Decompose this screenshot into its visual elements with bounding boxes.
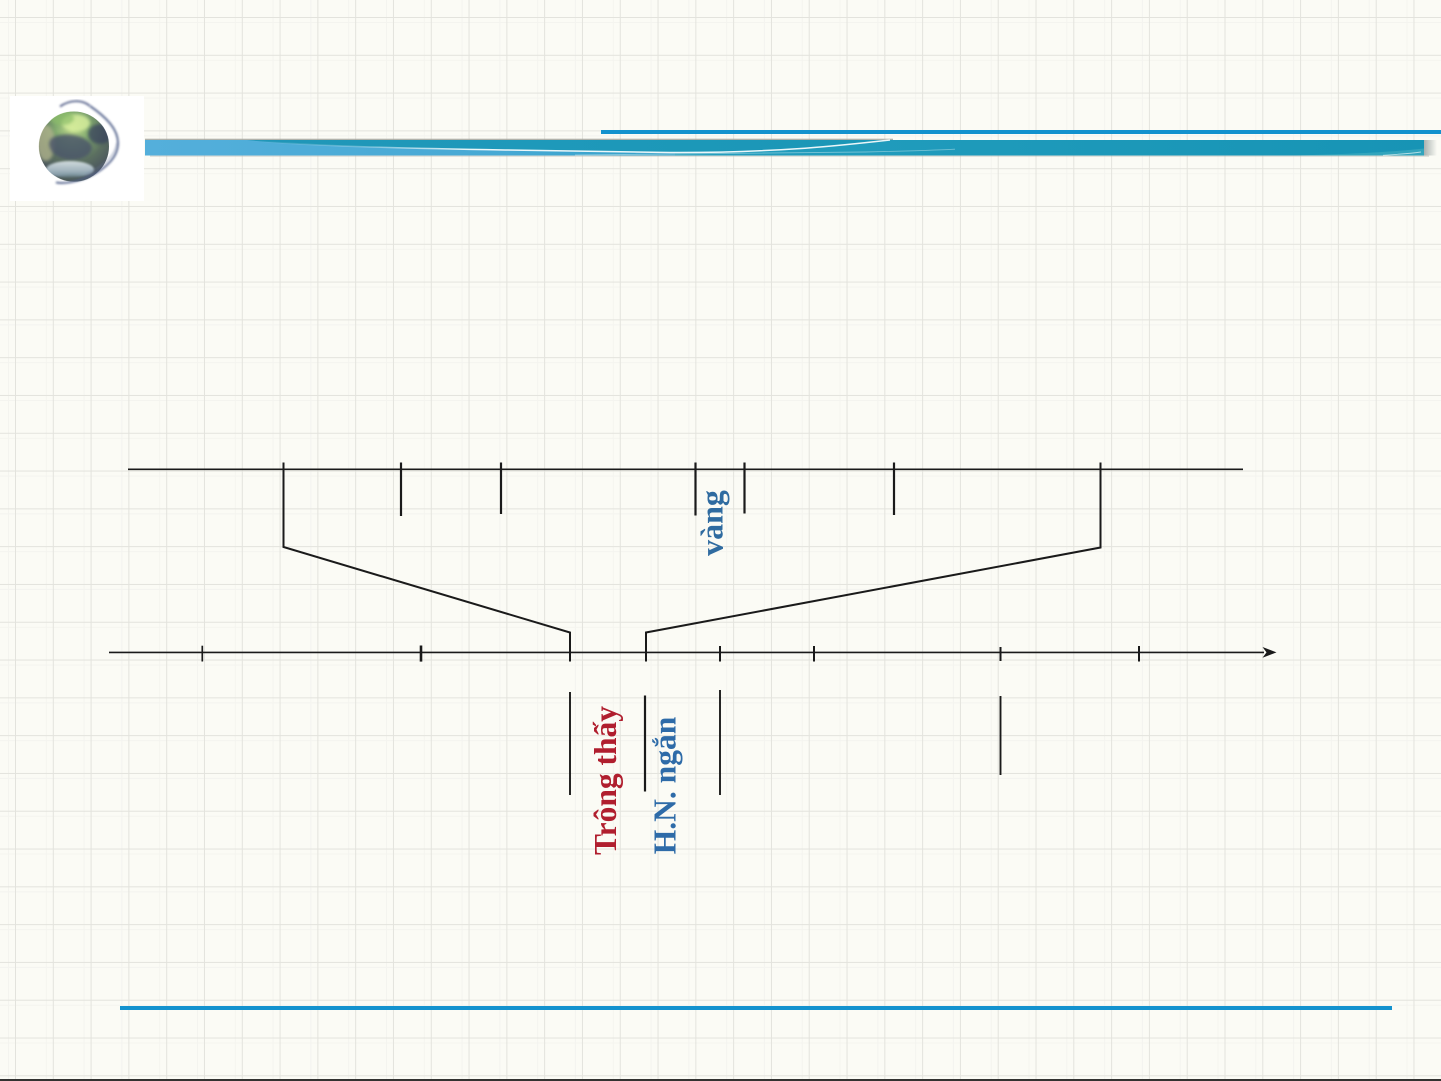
svg-text:vàng: vàng <box>694 490 730 556</box>
svg-text:H.N. ngắn: H.N. ngắn <box>648 716 683 854</box>
svg-text:Trông thấy: Trông thấy <box>588 706 623 855</box>
